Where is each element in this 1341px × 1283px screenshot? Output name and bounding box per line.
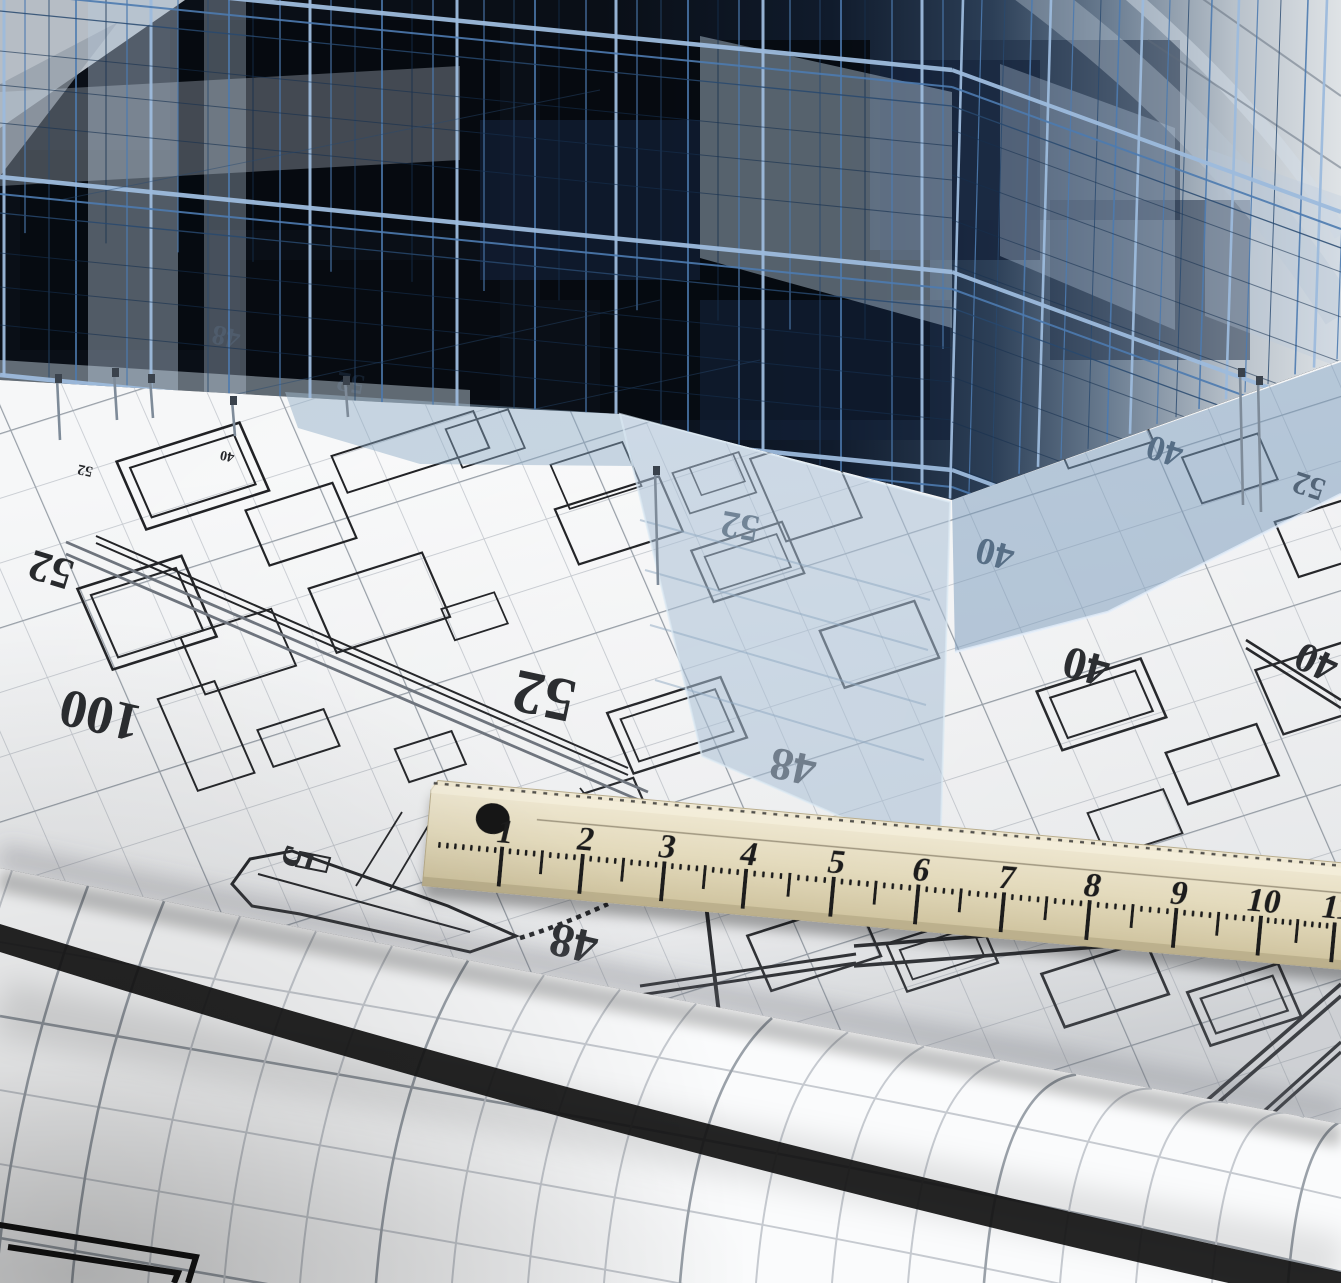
scene-canvas: 52 100 52 48 48 5 40 40 52 40 40 52 52 4… bbox=[0, 0, 1341, 1283]
scene-vignette bbox=[0, 0, 1341, 1283]
blueprint-scene: 52 100 52 48 48 5 40 40 52 40 40 52 52 4… bbox=[0, 0, 1341, 1283]
